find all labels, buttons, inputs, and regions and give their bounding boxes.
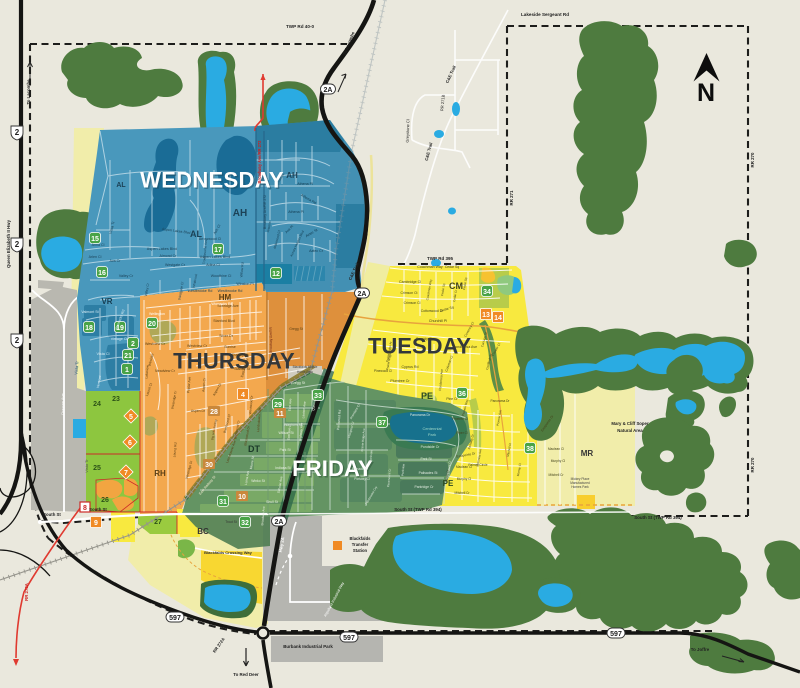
svg-text:Vista Cl: Vista Cl (96, 352, 109, 356)
svg-text:Burbank Industrial Park: Burbank Industrial Park (283, 644, 333, 649)
svg-text:South St (TWP Rd 394): South St (TWP Rd 394) (394, 507, 442, 512)
svg-text:2A: 2A (358, 291, 367, 298)
svg-text:Womacks Rd: Womacks Rd (211, 302, 232, 306)
svg-text:Westview Cr: Westview Cr (187, 344, 208, 348)
svg-text:Valley Cr: Valley Cr (119, 274, 134, 278)
svg-text:29: 29 (274, 402, 282, 409)
svg-text:South St (TWP Rd 394): South St (TWP Rd 394) (634, 515, 682, 520)
svg-text:17: 17 (214, 247, 222, 254)
svg-text:597: 597 (169, 615, 181, 622)
svg-text:Shull St: Shull St (266, 500, 278, 504)
svg-text:Ponderosa Ave: Ponderosa Ave (453, 345, 477, 349)
svg-text:Plumtree Cr: Plumtree Cr (390, 379, 410, 383)
svg-text:South St: South St (43, 512, 61, 517)
svg-text:Coachman Way: Coachman Way (417, 265, 443, 269)
svg-text:RR 273A: RR 273A (24, 583, 29, 601)
svg-text:Silver Dr: Silver Dr (219, 334, 234, 338)
svg-text:Meadview Cr: Meadview Cr (155, 369, 176, 373)
svg-text:TWP Rd 395: TWP Rd 395 (427, 256, 453, 261)
svg-text:Valmont St: Valmont St (81, 310, 98, 314)
svg-text:AH: AH (233, 208, 247, 219)
svg-text:Broadway Ave/RR: Broadway Ave/RR (269, 326, 273, 353)
svg-text:Broadway Ave/RR 272: Broadway Ave/RR 272 (257, 140, 262, 184)
svg-text:Maclean Cl: Maclean Cl (548, 447, 564, 451)
svg-text:10: 10 (238, 494, 246, 501)
svg-text:7: 7 (124, 470, 128, 477)
svg-text:2A: 2A (324, 87, 333, 94)
svg-text:Panorama Dr: Panorama Dr (410, 413, 431, 417)
svg-text:Blackfalds: Blackfalds (350, 536, 372, 541)
svg-text:2: 2 (131, 341, 135, 348)
svg-text:Westbrooke Rd: Westbrooke Rd (218, 289, 243, 293)
svg-text:Pinnacle Cl: Pinnacle Cl (352, 467, 368, 471)
svg-text:Westview Cr: Westview Cr (145, 342, 166, 346)
svg-text:Winko St: Winko St (251, 479, 265, 483)
svg-text:Athena Pl: Athena Pl (288, 210, 304, 214)
svg-text:RR 270: RR 270 (750, 152, 755, 167)
svg-text:Aspen Dr: Aspen Dr (191, 409, 206, 413)
svg-text:To Red Deer: To Red Deer (233, 672, 259, 677)
svg-text:CM: CM (449, 281, 463, 291)
svg-text:2A: 2A (275, 519, 284, 526)
svg-text:32: 32 (241, 520, 249, 527)
svg-text:Vista Tr: Vista Tr (84, 459, 89, 473)
svg-text:Piper Cl: Piper Cl (456, 431, 468, 435)
svg-text:Crimson Cl: Crimson Cl (404, 301, 421, 305)
svg-text:Palisades St: Palisades St (419, 471, 438, 475)
svg-text:Pine Cr: Pine Cr (446, 397, 458, 401)
svg-text:Gregg St: Gregg St (289, 327, 303, 331)
svg-text:597: 597 (610, 631, 622, 638)
svg-text:38: 38 (526, 446, 534, 453)
svg-text:Pondside Cr: Pondside Cr (421, 445, 441, 449)
svg-text:Almond Cr: Almond Cr (160, 254, 178, 258)
svg-text:Centennial: Centennial (422, 426, 441, 431)
svg-text:30: 30 (205, 462, 213, 469)
svg-text:Home Park: Home Park (297, 370, 313, 374)
svg-text:Aspen Lakes Blvd: Aspen Lakes Blvd (147, 247, 177, 251)
svg-text:Cedar Sq: Cedar Sq (445, 265, 459, 269)
svg-text:15: 15 (91, 236, 99, 243)
svg-text:Palmer Circle: Palmer Circle (468, 463, 487, 467)
svg-text:14: 14 (494, 315, 502, 322)
svg-text:VR: VR (101, 297, 112, 306)
svg-text:Transfer: Transfer (352, 542, 369, 547)
svg-text:Lakeside Sergeant Rd: Lakeside Sergeant Rd (521, 12, 569, 17)
svg-text:Westgate Cr: Westgate Cr (165, 263, 186, 267)
svg-text:WEDNESDAY: WEDNESDAY (140, 168, 284, 193)
svg-text:Murphy Cl: Murphy Cl (551, 459, 566, 463)
svg-text:BC: BC (197, 527, 209, 536)
svg-text:Mary & Cliff Soper: Mary & Cliff Soper (611, 421, 649, 426)
svg-text:Cassidy Cl: Cassidy Cl (416, 337, 432, 341)
svg-text:Anna Cl: Anna Cl (92, 243, 105, 247)
svg-text:TWP Rd 40-0: TWP Rd 40-0 (286, 24, 314, 29)
svg-text:To Joffre: To Joffre (691, 647, 710, 652)
svg-text:Homes Park: Homes Park (571, 485, 589, 489)
svg-text:Pinetree Cl: Pinetree Cl (452, 417, 468, 421)
svg-text:Duncan Ave: Duncan Ave (60, 392, 65, 414)
svg-text:Mitchell Cr: Mitchell Cr (548, 473, 564, 477)
svg-text:Aztec Cr: Aztec Cr (309, 249, 324, 253)
svg-text:RR 271: RR 271 (509, 190, 514, 205)
svg-text:37: 37 (378, 420, 386, 427)
svg-text:21: 21 (124, 353, 132, 360)
svg-text:DT: DT (248, 444, 260, 454)
svg-text:24: 24 (93, 401, 101, 408)
svg-text:11: 11 (276, 411, 284, 418)
svg-text:PE: PE (421, 391, 433, 401)
svg-text:Mitchell Cr: Mitchell Cr (454, 491, 470, 495)
svg-text:4: 4 (241, 392, 245, 399)
svg-text:Cottonwood Dr: Cottonwood Dr (421, 309, 444, 313)
svg-text:13: 13 (482, 312, 490, 319)
svg-text:Park St: Park St (279, 448, 290, 452)
svg-text:Panorama Dr: Panorama Dr (491, 399, 511, 403)
svg-text:N: N (697, 79, 715, 107)
svg-text:Blackfalds Crossing Way: Blackfalds Crossing Way (204, 550, 252, 555)
svg-text:597: 597 (343, 635, 355, 642)
svg-text:MR: MR (581, 449, 594, 458)
svg-text:HM: HM (219, 293, 232, 302)
svg-text:To Lacombe: To Lacombe (26, 79, 31, 105)
svg-text:Wellington: Wellington (149, 312, 165, 316)
svg-text:Queen Elizabeth II Hwy: Queen Elizabeth II Hwy (6, 219, 11, 268)
svg-text:8: 8 (83, 505, 87, 512)
svg-text:Murphy Cl: Murphy Cl (457, 477, 472, 481)
svg-text:1: 1 (125, 367, 129, 374)
svg-text:Greystone Cl: Greystone Cl (405, 119, 411, 143)
svg-text:6: 6 (128, 440, 132, 447)
svg-text:AL: AL (116, 182, 126, 189)
svg-text:Woodbine Cl: Woodbine Cl (211, 274, 232, 278)
svg-text:2: 2 (15, 336, 20, 345)
svg-text:Park St: Park St (420, 457, 431, 461)
svg-text:36: 36 (458, 391, 466, 398)
svg-text:Blackfalds Mobile: Blackfalds Mobile (293, 365, 318, 369)
svg-text:16: 16 (98, 270, 106, 277)
svg-text:Cyprus Rd: Cyprus Rd (402, 365, 419, 369)
svg-text:28: 28 (210, 409, 218, 416)
svg-text:26: 26 (101, 497, 109, 504)
svg-text:Arlen Cl: Arlen Cl (89, 255, 102, 259)
svg-text:Broadway Ave/RR 272: Broadway Ave/RR 272 (263, 195, 267, 229)
svg-text:South St: South St (89, 507, 107, 512)
svg-text:31: 31 (219, 499, 227, 506)
svg-text:Gregg St: Gregg St (291, 381, 305, 385)
svg-text:Westbrooke Rd: Westbrooke Rd (188, 289, 213, 293)
svg-text:Pinewood Cl: Pinewood Cl (374, 369, 392, 373)
svg-text:Station: Station (353, 548, 368, 553)
svg-text:18: 18 (85, 325, 93, 332)
svg-text:Adina Cl: Adina Cl (206, 263, 220, 267)
svg-text:Churchill Pl: Churchill Pl (429, 319, 447, 323)
svg-text:Winston Pl: Winston Pl (236, 282, 253, 286)
svg-text:Athena Pl: Athena Pl (297, 182, 313, 186)
svg-text:34: 34 (483, 289, 491, 296)
svg-text:9: 9 (94, 520, 98, 527)
svg-text:RR 270: RR 270 (750, 457, 755, 472)
svg-text:27: 27 (154, 519, 162, 526)
svg-text:RH: RH (154, 469, 166, 478)
svg-text:Cambridge Cl: Cambridge Cl (399, 280, 421, 284)
svg-text:2: 2 (15, 240, 20, 249)
svg-text:Vintage Cl: Vintage Cl (111, 337, 128, 341)
svg-text:Stanford Blvd: Stanford Blvd (213, 319, 235, 323)
svg-text:Natural Area: Natural Area (617, 428, 643, 433)
svg-text:Portway Cl: Portway Cl (354, 477, 370, 481)
svg-text:2: 2 (15, 128, 20, 137)
svg-text:Sunrise: Sunrise (224, 345, 236, 349)
svg-text:25: 25 (93, 465, 101, 472)
svg-text:5: 5 (129, 414, 133, 421)
svg-text:Ava Cr: Ava Cr (110, 259, 122, 263)
svg-text:Parkridge Cr: Parkridge Cr (414, 485, 434, 489)
svg-text:Park: Park (428, 432, 436, 437)
svg-text:AH: AH (286, 171, 298, 180)
svg-text:23: 23 (112, 396, 120, 403)
svg-text:20: 20 (148, 321, 156, 328)
svg-text:12: 12 (272, 271, 280, 278)
svg-text:Trout St: Trout St (225, 520, 236, 524)
svg-text:Crimson Ct: Crimson Ct (401, 291, 418, 295)
svg-text:Arrowwood Cl: Arrowwood Cl (199, 237, 222, 241)
svg-text:Indiana St: Indiana St (275, 466, 290, 470)
